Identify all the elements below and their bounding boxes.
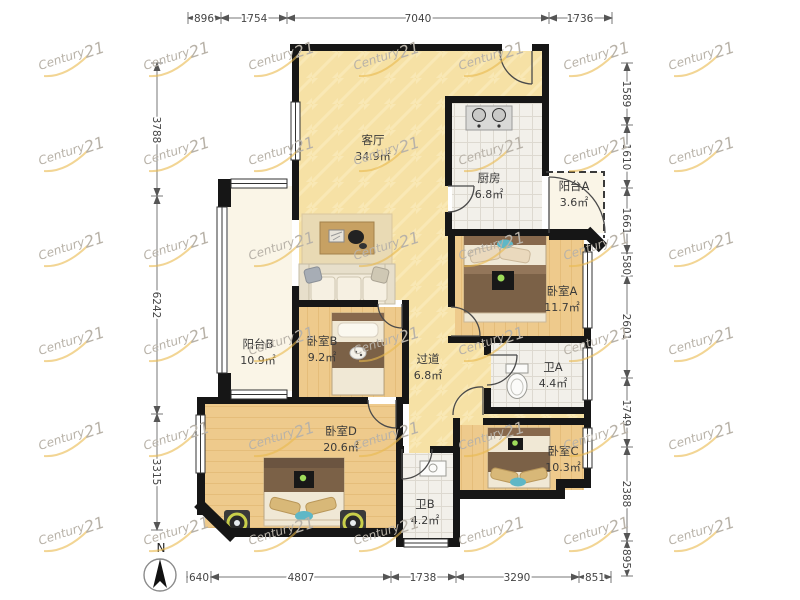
dimension-value: 3315	[150, 459, 162, 486]
svg-text:Century21: Century21	[36, 228, 107, 267]
room-label-hallway: 过道	[417, 352, 440, 366]
dimension-value: 896	[194, 13, 214, 25]
svg-text:Century21: Century21	[666, 133, 737, 172]
svg-text:Century21: Century21	[666, 228, 737, 267]
dimension-value: 7040	[405, 13, 432, 25]
watermark: Century21	[141, 323, 213, 365]
room-area-balcony-a: 3.6㎡	[560, 196, 589, 209]
watermark: Century21	[666, 513, 738, 555]
watermark: Century21	[141, 38, 213, 80]
svg-text:Century21: Century21	[561, 513, 632, 552]
watermark: Century21	[666, 323, 738, 365]
watermark: Century21	[666, 418, 738, 460]
dimension-chain-bottom: 640 4807 1738 3290 851	[187, 571, 611, 584]
watermark: Century21	[561, 38, 633, 80]
dimension-value: 2388	[620, 481, 632, 508]
svg-text:Century21: Century21	[36, 323, 107, 362]
room-label-kitchen: 厨房	[478, 171, 501, 185]
floor-plan-page: 客厅 34.9㎡ 厨房 6.8㎡ 阳台A 3.6㎡ 卧室A 11.7㎡ 阳台B …	[0, 0, 800, 600]
svg-text:Century21: Century21	[36, 513, 107, 552]
svg-text:Century21: Century21	[141, 513, 212, 552]
room-label-balcony-a: 阳台A	[559, 179, 590, 193]
svg-text:Century21: Century21	[36, 38, 107, 77]
svg-text:Century21: Century21	[666, 418, 737, 457]
floor-plan-canvas: 客厅 34.9㎡ 厨房 6.8㎡ 阳台A 3.6㎡ 卧室A 11.7㎡ 阳台B …	[0, 0, 800, 600]
dimension-chain-left: 3788 6242 3315	[150, 63, 163, 530]
dimension-value: 580	[620, 255, 632, 275]
room-area-hallway: 6.8㎡	[414, 369, 443, 382]
room-label-bath-b: 卫B	[415, 497, 434, 511]
svg-text:Century21: Century21	[141, 323, 212, 362]
dimension-value: 1736	[567, 13, 594, 25]
dimension-value: 851	[585, 572, 605, 584]
svg-text:Century21: Century21	[666, 323, 737, 362]
washer	[420, 461, 446, 476]
dimension-value: 640	[189, 572, 209, 584]
dimension-chain-top: 896 1754 7040 1736	[188, 12, 612, 25]
watermark: Century21	[666, 38, 738, 80]
svg-text:Century21: Century21	[36, 418, 107, 457]
window-bath-b-bottom	[404, 539, 448, 547]
watermark: Century21	[141, 513, 213, 555]
dimension-value: 1738	[410, 572, 437, 584]
room-label-bath-a: 卫A	[543, 360, 562, 374]
watermark: Century21	[36, 133, 108, 175]
watermark: Century21	[36, 513, 108, 555]
room-area-bedroom-c: 10.3㎡	[545, 461, 581, 474]
watermark: Century21	[456, 513, 528, 555]
window-balcony-b-bottom	[231, 390, 287, 399]
room-area-bath-a: 4.4㎡	[539, 377, 568, 390]
svg-text:Century21: Century21	[666, 38, 737, 77]
room-label-bedroom-a: 卧室A	[547, 284, 578, 298]
watermark: Century21	[666, 228, 738, 270]
watermark: Century21	[36, 323, 108, 365]
svg-text:Century21: Century21	[561, 38, 632, 77]
room-area-bedroom-a: 11.7㎡	[544, 301, 580, 314]
room-area-bedroom-b: 9.2㎡	[308, 351, 337, 364]
dimension-value: 3290	[504, 572, 531, 584]
room-area-kitchen: 6.8㎡	[475, 188, 504, 201]
watermark: Century21	[36, 38, 108, 80]
window-balcony-b-top	[231, 179, 287, 188]
toilet	[506, 364, 528, 399]
watermark: Century21	[36, 418, 108, 460]
dimension-value: 4807	[288, 572, 315, 584]
dimension-value: 3788	[150, 117, 162, 144]
window-balcony-b-left	[217, 207, 227, 373]
watermark: Century21	[666, 133, 738, 175]
stove	[466, 106, 512, 130]
svg-text:Century21: Century21	[456, 513, 527, 552]
dimension-value: 6242	[150, 292, 162, 319]
room-label-bedroom-d: 卧室D	[325, 424, 357, 438]
watermark: Century21	[141, 228, 213, 270]
watermark: Century21	[36, 228, 108, 270]
dimension-value: 1589	[620, 81, 632, 108]
svg-text:Century21: Century21	[141, 228, 212, 267]
svg-text:Century21: Century21	[36, 133, 107, 172]
compass-icon: N	[144, 541, 176, 591]
dimension-value: 1754	[241, 13, 268, 25]
sofa	[299, 264, 395, 304]
svg-text:Century21: Century21	[141, 38, 212, 77]
dimension-value: 895	[620, 549, 632, 569]
svg-text:Century21: Century21	[666, 513, 737, 552]
